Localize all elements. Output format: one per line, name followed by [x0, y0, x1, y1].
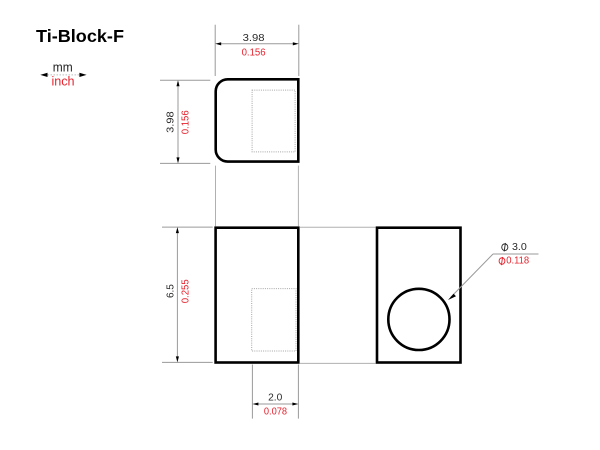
svg-text:3.0: 3.0 — [512, 242, 527, 253]
svg-text:0.078: 0.078 — [264, 406, 288, 417]
svg-text:0.156: 0.156 — [181, 110, 192, 134]
svg-text:0.255: 0.255 — [181, 279, 192, 303]
svg-text:mm: mm — [53, 60, 73, 75]
svg-text:3.98: 3.98 — [165, 111, 176, 133]
svg-text:Ti-Block-F: Ti-Block-F — [36, 26, 124, 46]
svg-text:inch: inch — [51, 75, 74, 89]
svg-text:0.156: 0.156 — [242, 48, 266, 59]
svg-text:3.98: 3.98 — [243, 33, 265, 44]
svg-text:0.118: 0.118 — [506, 256, 529, 267]
svg-text:2.0: 2.0 — [268, 393, 283, 404]
svg-text:6.5: 6.5 — [166, 284, 177, 298]
